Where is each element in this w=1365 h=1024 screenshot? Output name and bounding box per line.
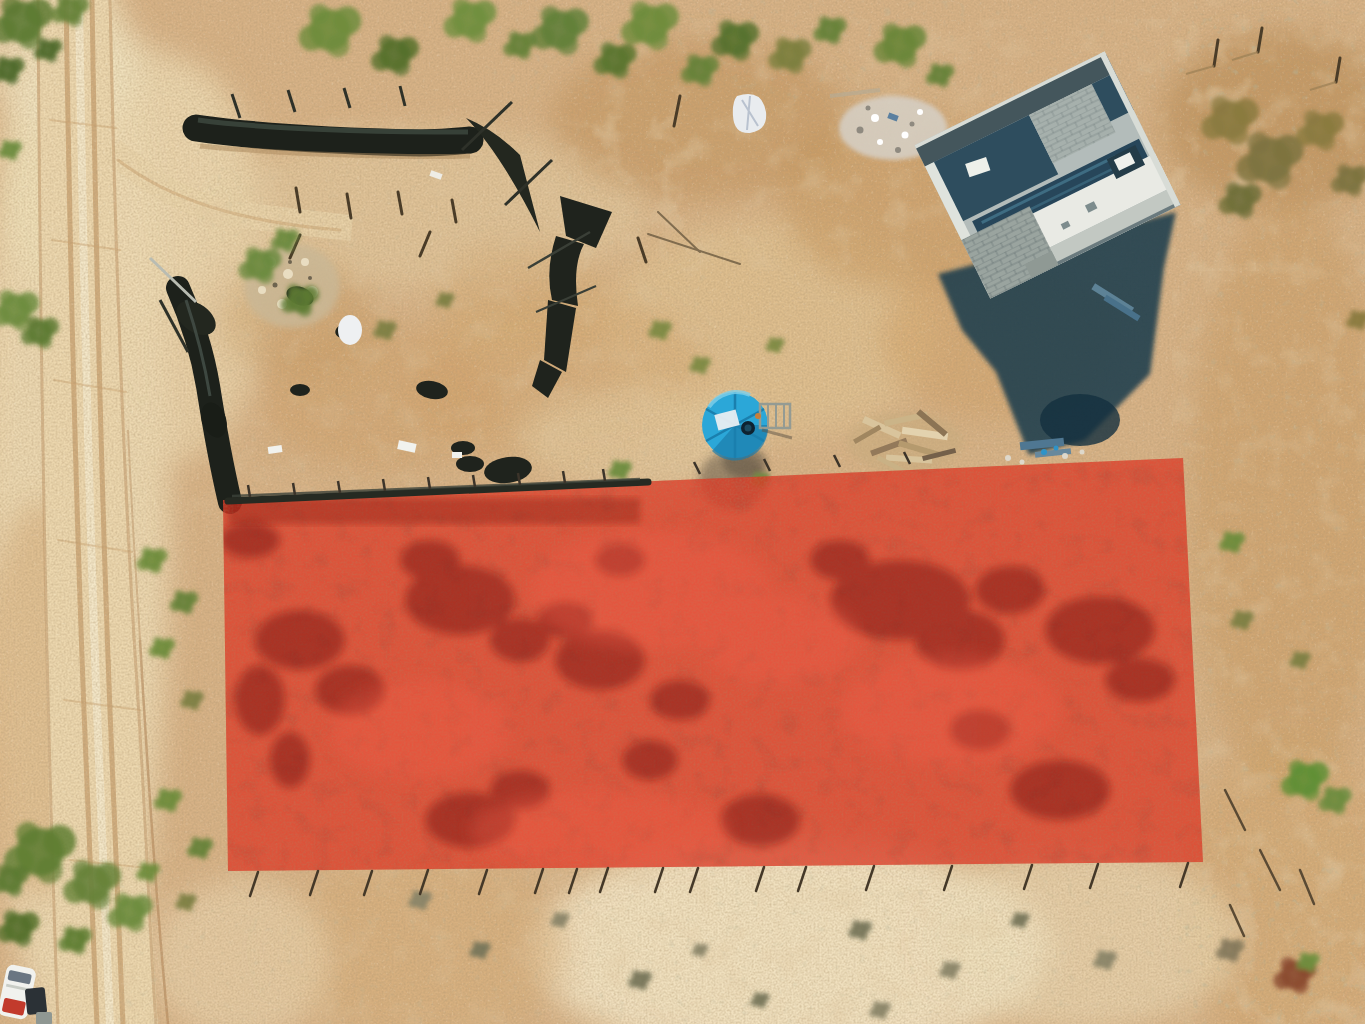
trash-bin-gray — [36, 1012, 52, 1024]
highlighted-lot-overlay — [220, 458, 1203, 871]
aerial-photo — [0, 0, 1365, 1024]
white-sack-small — [338, 315, 362, 345]
lot-overlay-texture — [220, 458, 1203, 871]
trash-bin-dark — [25, 987, 48, 1015]
